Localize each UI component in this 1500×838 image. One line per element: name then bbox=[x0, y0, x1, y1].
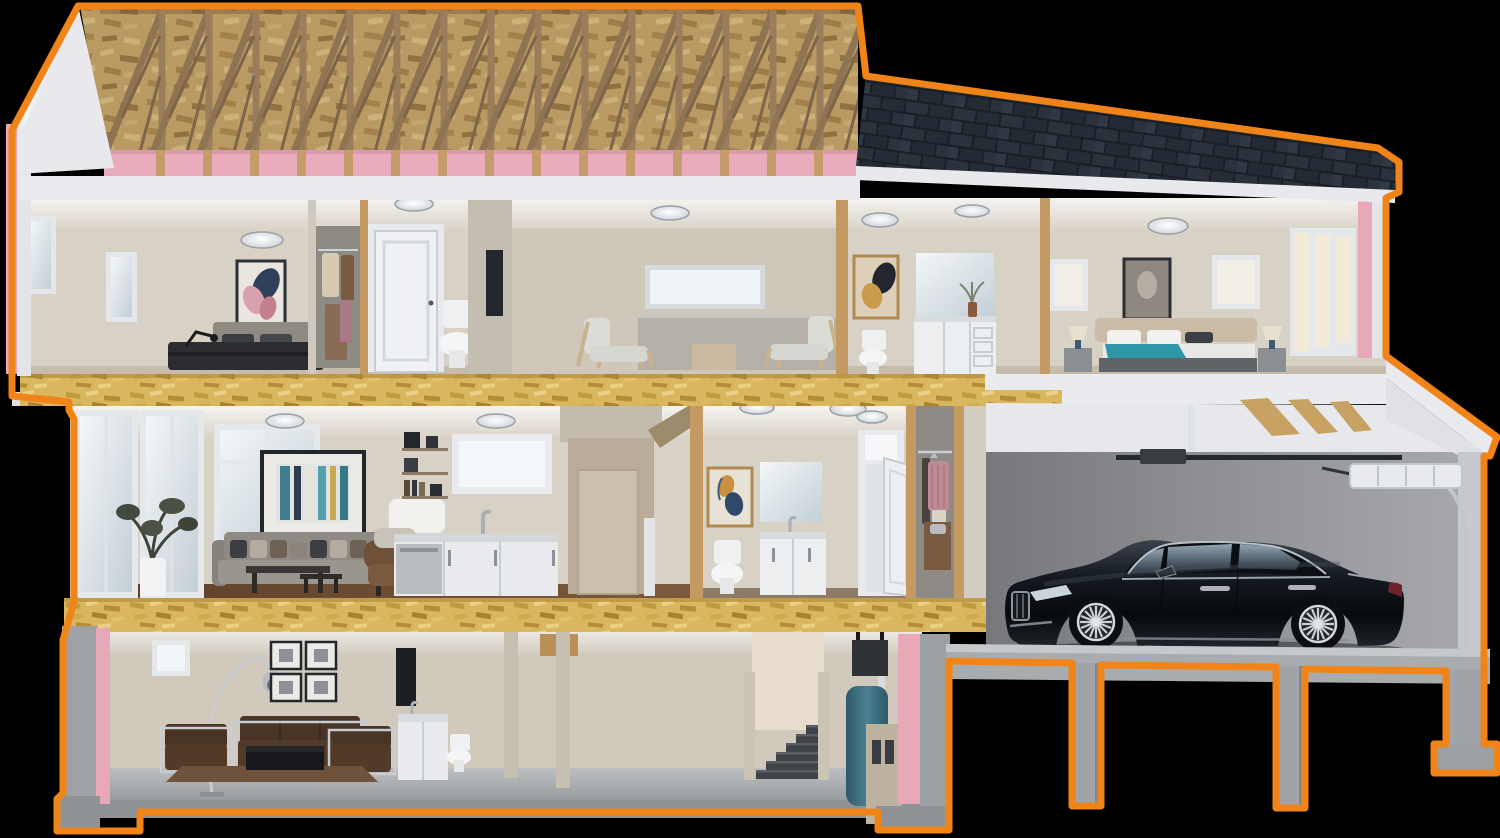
kitchen-window bbox=[452, 434, 552, 494]
rear-wheel bbox=[1291, 597, 1345, 651]
front-door bbox=[858, 430, 912, 596]
small-dark-art bbox=[486, 250, 503, 316]
triple-window bbox=[1290, 228, 1356, 356]
bedroom-left-window-2 bbox=[106, 252, 137, 322]
wood-stud bbox=[836, 198, 848, 376]
rolled-up-garage-door bbox=[1350, 464, 1462, 488]
partition-wall bbox=[504, 628, 518, 778]
speaker bbox=[426, 436, 438, 448]
insulation-basement-left bbox=[96, 628, 110, 804]
cutaway-house-render: 3D cutaway cross-section of a two-storey… bbox=[0, 0, 1500, 838]
entry-closet bbox=[916, 398, 954, 598]
basement-window bbox=[152, 640, 190, 676]
black-coffee-table bbox=[246, 746, 324, 770]
side-table bbox=[692, 344, 736, 370]
wood-stud bbox=[360, 198, 368, 376]
foundation-wall-left bbox=[62, 626, 98, 812]
garage-side-wall bbox=[964, 396, 986, 598]
grille bbox=[1012, 592, 1029, 620]
wall-panel-tv bbox=[396, 648, 416, 706]
duct-box bbox=[852, 640, 888, 676]
door-handle-front bbox=[1200, 586, 1230, 591]
hanging-coat bbox=[341, 255, 354, 301]
door-knob bbox=[429, 301, 434, 306]
cutaway-svg: 3D cutaway cross-section of a two-storey… bbox=[0, 0, 1500, 838]
stair-rail-left bbox=[744, 672, 755, 780]
kitchen-cabinets bbox=[394, 534, 558, 596]
attic-insulation-band bbox=[104, 150, 860, 178]
basement bbox=[84, 626, 946, 824]
hanging-jacket bbox=[322, 253, 339, 297]
upstairs-hall-door bbox=[368, 224, 444, 372]
partition-wall bbox=[556, 628, 570, 788]
leather-armchair-left bbox=[161, 724, 231, 772]
wood-stud bbox=[906, 396, 916, 598]
wood-stud bbox=[1040, 198, 1050, 376]
vanity-mirror bbox=[916, 253, 994, 317]
teal-abstract-painting bbox=[262, 452, 364, 536]
frosted-window bbox=[645, 265, 765, 309]
horse-wall-art bbox=[1124, 259, 1170, 319]
bed-teal bbox=[1095, 318, 1257, 372]
vanity-cabinet bbox=[914, 316, 996, 374]
insulation-right-wall bbox=[1358, 196, 1373, 358]
truss-end-blocks bbox=[156, 150, 823, 178]
osb-floor-band-upper bbox=[20, 374, 986, 406]
floral-wall-art bbox=[237, 261, 285, 325]
front-wheel bbox=[1069, 595, 1123, 649]
bedroom-right-window-1 bbox=[1050, 259, 1088, 311]
hanging-dress bbox=[340, 300, 352, 342]
stair-landing-door bbox=[578, 470, 638, 594]
second-floor bbox=[20, 197, 1386, 378]
stair-half-wall bbox=[638, 314, 836, 370]
footing-left bbox=[56, 796, 100, 830]
pier-footing bbox=[1434, 745, 1497, 773]
stair-rail-right bbox=[818, 672, 829, 780]
abstract-art-gold bbox=[854, 256, 900, 318]
footing-right bbox=[876, 806, 950, 830]
door-transom bbox=[865, 435, 897, 460]
door-handle-rear bbox=[1288, 585, 1316, 590]
insulation-basement-right bbox=[898, 634, 920, 804]
second-floor-ceiling-band bbox=[18, 176, 860, 200]
sitting-loft bbox=[512, 228, 840, 376]
laundry-cabinet-sink bbox=[398, 702, 448, 780]
coffee-maker bbox=[404, 432, 420, 448]
leaf-abstract-art bbox=[708, 468, 752, 526]
bathroom-mirror bbox=[760, 462, 822, 522]
wood-post bbox=[690, 400, 703, 598]
bedroom-right-window-2 bbox=[1212, 255, 1260, 309]
main-floor bbox=[70, 396, 986, 600]
garage-door-opener bbox=[1140, 449, 1186, 464]
wood-stud bbox=[954, 396, 964, 598]
osb-floor-band-lower bbox=[64, 598, 986, 632]
garage-pier-3 bbox=[1446, 670, 1484, 745]
newel-post bbox=[644, 518, 655, 596]
